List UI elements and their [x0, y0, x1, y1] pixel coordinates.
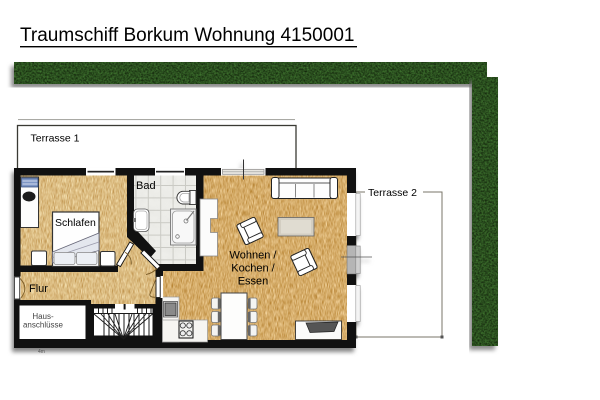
svg-text:Schlafen: Schlafen [55, 217, 96, 229]
svg-text:Traumschiff Borkum Wohnung 415: Traumschiff Borkum Wohnung 4150001 [20, 25, 354, 46]
svg-text:anschlüsse: anschlüsse [23, 321, 64, 330]
svg-text:4m: 4m [38, 349, 45, 355]
svg-text:Terrasse 1: Terrasse 1 [31, 133, 80, 145]
svg-text:Bad: Bad [136, 180, 156, 192]
svg-text:Essen: Essen [238, 276, 269, 288]
svg-text:Kochen /: Kochen / [231, 263, 275, 275]
svg-text:Terrasse 2: Terrasse 2 [368, 187, 417, 199]
svg-text:Flur: Flur [29, 283, 48, 295]
svg-text:Wohnen /: Wohnen / [230, 250, 278, 262]
